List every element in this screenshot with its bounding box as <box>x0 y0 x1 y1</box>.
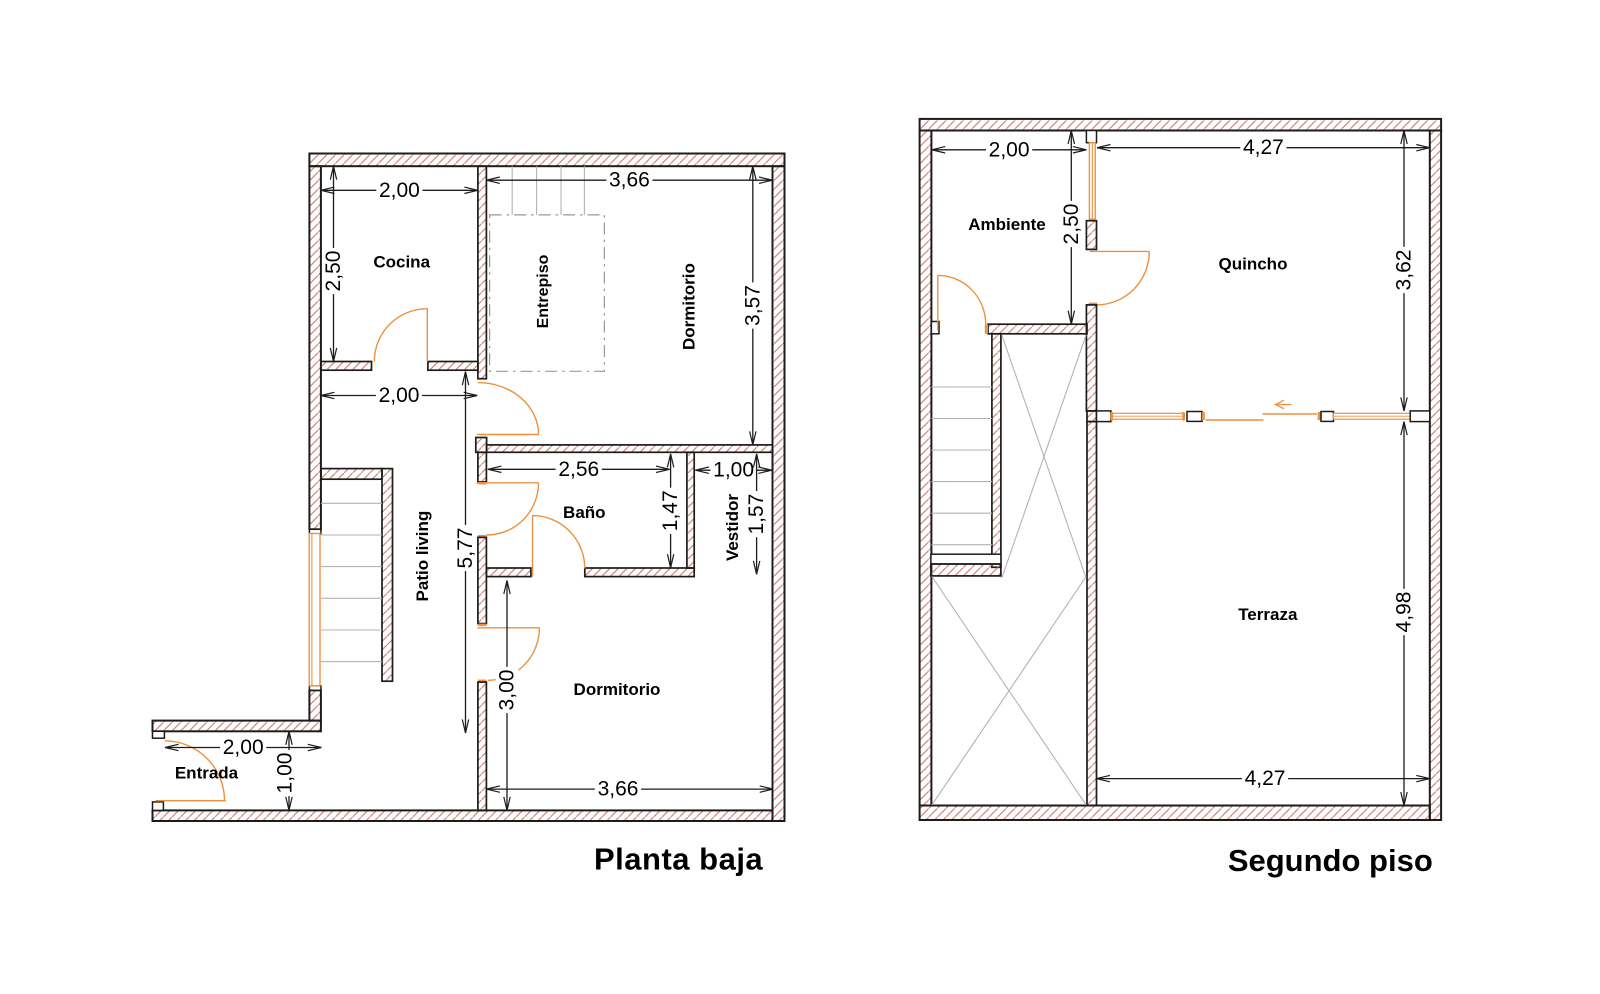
svg-text:1,57: 1,57 <box>745 494 768 535</box>
svg-text:2,50: 2,50 <box>1060 204 1083 245</box>
svg-text:Vestidor: Vestidor <box>723 494 742 561</box>
svg-text:2,50: 2,50 <box>322 251 345 292</box>
svg-text:2,56: 2,56 <box>558 458 599 481</box>
svg-text:Ambiente: Ambiente <box>968 215 1045 234</box>
svg-text:Entrada: Entrada <box>175 764 239 783</box>
svg-text:3,66: 3,66 <box>598 778 639 801</box>
svg-text:1,00: 1,00 <box>713 459 754 482</box>
svg-text:3,57: 3,57 <box>741 285 764 326</box>
svg-text:4,27: 4,27 <box>1243 136 1284 159</box>
svg-text:3,66: 3,66 <box>609 169 650 192</box>
svg-text:Planta baja: Planta baja <box>594 841 763 876</box>
svg-text:2,00: 2,00 <box>379 179 420 202</box>
svg-text:3,62: 3,62 <box>1393 250 1416 291</box>
svg-text:Baño: Baño <box>563 503 606 522</box>
svg-text:4,27: 4,27 <box>1245 767 1286 790</box>
svg-text:4,98: 4,98 <box>1393 592 1416 633</box>
svg-text:Segundo piso: Segundo piso <box>1228 843 1433 878</box>
svg-text:3,00: 3,00 <box>496 670 519 711</box>
svg-text:Cocina: Cocina <box>373 253 430 272</box>
svg-text:5,77: 5,77 <box>454 528 477 569</box>
svg-text:2,00: 2,00 <box>379 384 420 407</box>
svg-text:Quincho: Quincho <box>1219 255 1288 274</box>
svg-text:2,00: 2,00 <box>223 736 264 759</box>
svg-text:Dormitorio: Dormitorio <box>574 680 661 699</box>
svg-text:1,00: 1,00 <box>274 753 297 794</box>
svg-text:1,47: 1,47 <box>659 490 682 531</box>
svg-text:Dormitorio: Dormitorio <box>679 263 698 350</box>
svg-text:Patio living: Patio living <box>413 511 432 602</box>
svg-text:Terraza: Terraza <box>1238 605 1298 624</box>
svg-text:2,00: 2,00 <box>989 138 1030 161</box>
svg-text:Entrepiso: Entrepiso <box>535 254 552 328</box>
